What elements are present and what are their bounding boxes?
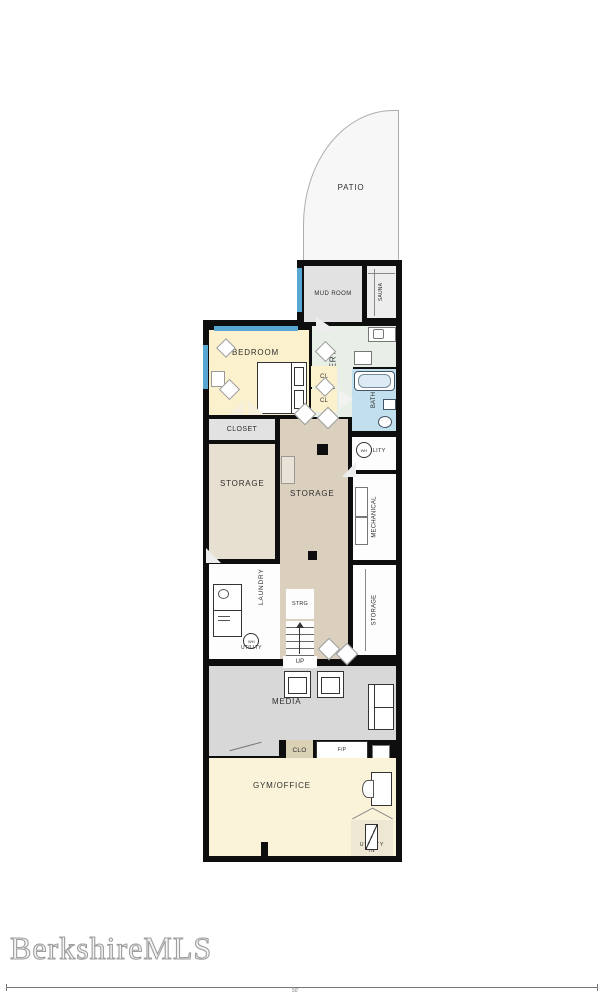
- wall-niche: [281, 456, 295, 484]
- water-heater-circle: WH: [356, 442, 372, 458]
- sink-icon: [354, 351, 372, 365]
- armchair-seat: [288, 677, 307, 694]
- water-heater-icon: WH: [356, 442, 372, 458]
- room-label: SAUNA: [378, 283, 384, 301]
- media-wall-strip: [209, 740, 279, 756]
- equipment-icon: [355, 487, 368, 517]
- room-patio: PATIO: [303, 110, 399, 264]
- room-label: MECHANICAL: [372, 496, 378, 537]
- room-storage-left: [209, 444, 275, 559]
- room-label: UTILITY: [241, 645, 262, 651]
- armchair-seat: [321, 677, 340, 694]
- washer-door: [218, 589, 229, 599]
- room-label: STRG: [292, 601, 308, 607]
- room-strg: STRG: [286, 589, 314, 619]
- equipment-icon: [355, 517, 368, 545]
- room-storage-right: STORAGE: [353, 565, 396, 655]
- room-label: CLOSET: [227, 426, 257, 433]
- window-marker: [214, 326, 298, 331]
- scale-bar-label: 50': [290, 988, 301, 994]
- room-label: MUD ROOM: [314, 291, 351, 297]
- scale-bar: [6, 987, 598, 988]
- dryer-line: [218, 620, 230, 621]
- sofa-icon: [368, 684, 394, 730]
- room-label: CL: [320, 398, 328, 404]
- sofa-cushion-line: [374, 707, 393, 708]
- armchair-icon: [284, 671, 311, 698]
- desk-icon: [371, 772, 392, 806]
- room-label: UP: [296, 659, 305, 665]
- stairs-arrow-head: [296, 622, 304, 628]
- floor-plan-canvas: PATIO MUD ROOM SAUNA SERVERY BEDROOM CL …: [0, 0, 606, 1000]
- washer-icon: [213, 584, 242, 611]
- armchair-icon: [317, 671, 344, 698]
- room-label: GYM/OFFICE: [253, 781, 311, 790]
- stairs-up-gap: UP: [283, 656, 317, 668]
- scale-bar-tick: [597, 984, 598, 991]
- room-label: MEDIA: [272, 697, 301, 706]
- sink-icon: [383, 399, 396, 410]
- desk-chair-icon: [362, 780, 374, 798]
- sauna-bench-line: [368, 273, 395, 274]
- room-label: STORAGE: [220, 479, 265, 488]
- watermark: BerkshireMLS: [10, 930, 212, 967]
- room-label: BATH: [371, 392, 377, 408]
- fixture-box: [372, 745, 390, 759]
- room-label: PATIO: [338, 183, 365, 192]
- shelf-line: [365, 569, 366, 651]
- column-marker: [317, 444, 328, 455]
- room-label: STORAGE: [290, 489, 335, 498]
- sink-icon: [373, 329, 384, 339]
- window-marker: [203, 345, 208, 389]
- scale-bar-tick: [6, 984, 7, 991]
- water-heater-icon: WH UTILITY: [241, 633, 262, 651]
- toilet-icon: [378, 416, 392, 428]
- window-marker: [297, 268, 302, 312]
- bathtub-basin: [358, 374, 391, 388]
- bed-divider: [291, 363, 292, 413]
- room-label: BEDROOM: [232, 348, 279, 357]
- sauna-bench-line: [374, 269, 375, 316]
- column-marker: [308, 551, 317, 560]
- room-label: STORAGE: [371, 595, 377, 626]
- dryer-icon: [213, 610, 242, 637]
- bathtub-icon: [354, 371, 395, 391]
- pillow-icon: [294, 367, 304, 386]
- room-label: LAUNDRY: [258, 568, 265, 605]
- dryer-line: [218, 616, 230, 617]
- room-label: F/P: [338, 747, 346, 753]
- wall-stub: [261, 842, 268, 857]
- room-mud-room: MUD ROOM: [304, 266, 362, 322]
- ladder-icon: [365, 824, 378, 850]
- room-clo: CLO: [286, 740, 313, 760]
- stairs-arrow-shaft: [299, 627, 300, 654]
- room-closet: CLOSET: [209, 419, 275, 440]
- fireplace: F/P: [316, 741, 368, 759]
- room-label: CLO: [293, 747, 307, 754]
